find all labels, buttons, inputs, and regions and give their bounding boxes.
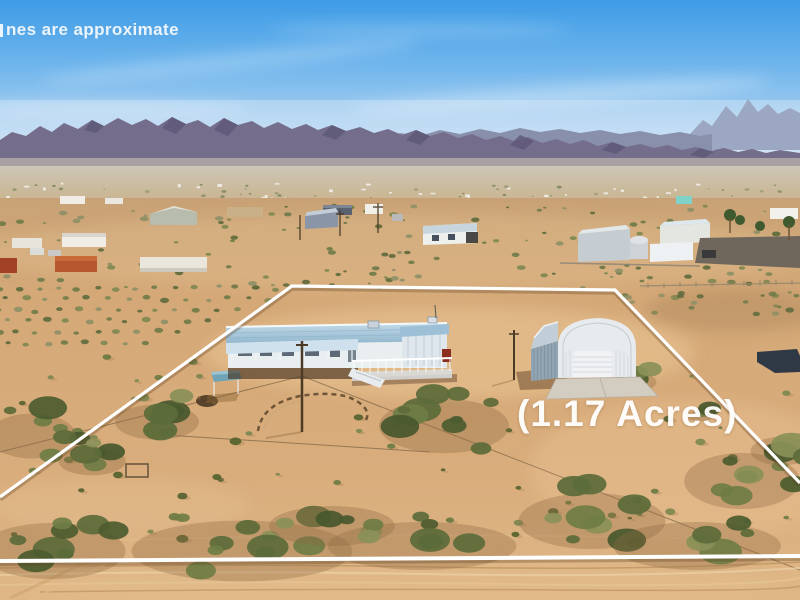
garage-door (573, 351, 612, 377)
watermark-text: nes are approximate (6, 20, 179, 40)
aerial-photo: nes are approximate (1.17 Acres) (0, 0, 800, 600)
cut-letter-fragment (0, 24, 3, 37)
scene-graphic (0, 0, 800, 600)
acreage-label: (1.17 Acres) (517, 393, 737, 435)
